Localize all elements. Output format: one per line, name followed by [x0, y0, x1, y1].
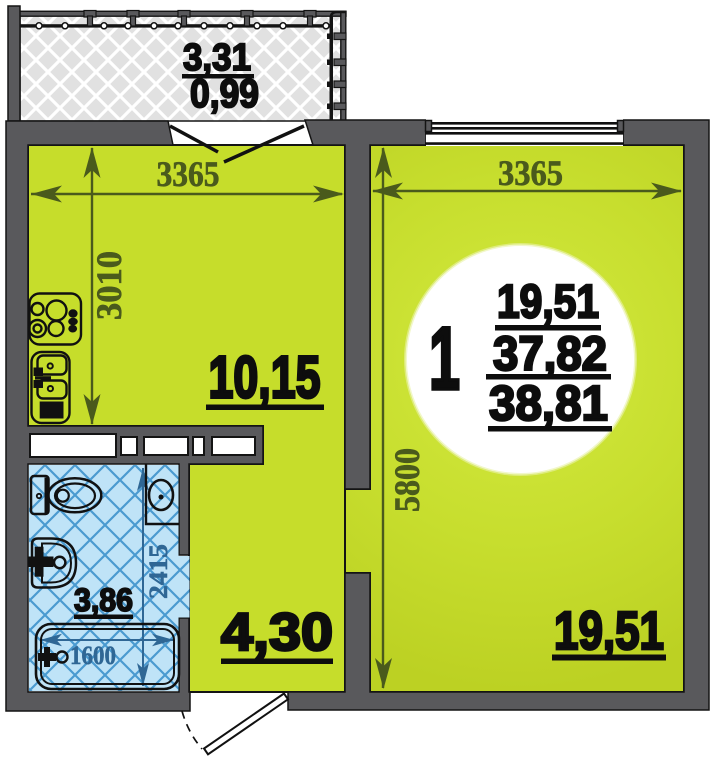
- svg-text:4,30: 4,30: [221, 603, 333, 662]
- svg-text:3,86: 3,86: [74, 582, 133, 618]
- svg-text:3365: 3365: [498, 153, 563, 193]
- svg-text:3010: 3010: [89, 251, 129, 320]
- svg-text:3365: 3365: [157, 154, 220, 194]
- svg-text:1: 1: [429, 308, 460, 408]
- svg-text:19,51: 19,51: [554, 601, 664, 661]
- svg-text:19,51: 19,51: [497, 275, 599, 328]
- svg-text:2415: 2415: [144, 544, 173, 599]
- svg-text:10,15: 10,15: [209, 345, 321, 411]
- svg-text:1600: 1600: [70, 641, 116, 670]
- svg-text:0,99: 0,99: [190, 72, 259, 116]
- svg-text:38,81: 38,81: [489, 377, 608, 431]
- svg-text:37,82: 37,82: [493, 328, 607, 381]
- svg-text:5800: 5800: [387, 448, 427, 512]
